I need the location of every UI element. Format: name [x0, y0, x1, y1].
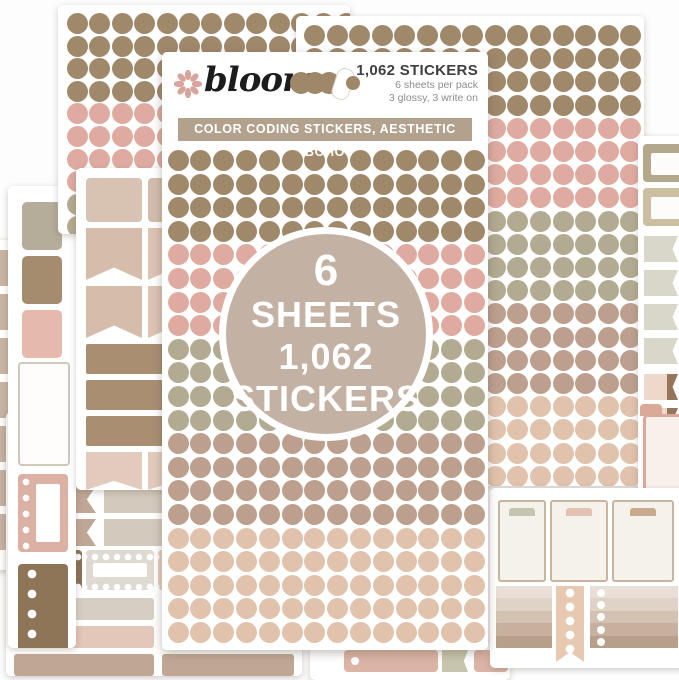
clipboard-sticker	[612, 500, 674, 582]
dot-sticker	[190, 575, 211, 596]
dot-sticker	[304, 197, 325, 218]
dot-sticker	[507, 327, 528, 348]
dot-sticker	[553, 95, 574, 116]
dot-sticker	[349, 25, 370, 46]
dot-sticker	[464, 174, 485, 195]
banner-flag-sticker	[86, 452, 142, 490]
dot-sticker	[190, 315, 211, 336]
dot-sticker	[553, 118, 574, 139]
dot-sticker	[213, 551, 234, 572]
dot-sticker	[168, 197, 189, 218]
dot-sticker	[418, 386, 439, 407]
dot-sticker	[440, 25, 461, 46]
dot-sticker	[190, 598, 211, 619]
dot-sticker	[464, 528, 485, 549]
dot-sticker	[441, 528, 462, 549]
dot-sticker	[598, 303, 619, 324]
dot-sticker	[190, 174, 211, 195]
dot-sticker	[553, 373, 574, 394]
dot-sticker	[373, 150, 394, 171]
dot-sticker	[441, 457, 462, 478]
dot-sticker	[190, 150, 211, 171]
dot-sticker	[464, 457, 485, 478]
dot-sticker	[190, 622, 211, 643]
dot-sticker	[598, 396, 619, 417]
dot-sticker	[168, 598, 189, 619]
dot-sticker	[282, 197, 303, 218]
dot-sticker	[598, 25, 619, 46]
dot-sticker	[168, 386, 189, 407]
dotted-strip-sticker	[18, 564, 68, 648]
dot-sticker	[598, 234, 619, 255]
dot-sticker	[190, 244, 211, 265]
dot-sticker	[553, 327, 574, 348]
dot-sticker	[259, 174, 280, 195]
dot-sticker	[224, 13, 245, 34]
dot-sticker	[441, 221, 462, 242]
dot-sticker	[418, 551, 439, 572]
dot-sticker	[575, 396, 596, 417]
flag-sticker	[442, 650, 468, 672]
dot-sticker	[67, 58, 88, 79]
dotted-label-sticker	[18, 474, 68, 552]
dot-sticker	[190, 457, 211, 478]
dot-sticker	[418, 174, 439, 195]
dot-sticker	[396, 480, 417, 501]
dot-sticker	[575, 350, 596, 371]
dot-sticker	[553, 396, 574, 417]
dot-sticker	[67, 149, 88, 170]
dot-sticker	[530, 443, 551, 464]
dot-sticker	[236, 504, 257, 525]
dot-sticker	[236, 480, 257, 501]
dot-sticker	[350, 504, 371, 525]
dot-sticker	[282, 528, 303, 549]
tab-label-sticker	[643, 188, 679, 226]
dot-sticker	[485, 25, 506, 46]
square-sticker	[22, 202, 62, 250]
dot-sticker	[464, 598, 485, 619]
dot-sticker	[464, 197, 485, 218]
dot-sticker	[373, 433, 394, 454]
dot-sticker	[282, 575, 303, 596]
dot-sticker	[620, 25, 641, 46]
dot-sticker	[507, 25, 528, 46]
dot-sticker	[259, 433, 280, 454]
dot-sticker	[190, 386, 211, 407]
dot-sticker	[373, 480, 394, 501]
dot-sticker	[168, 622, 189, 643]
dot-sticker	[259, 551, 280, 572]
dot-sticker	[350, 598, 371, 619]
dot-sticker	[530, 95, 551, 116]
dot-sticker	[553, 466, 574, 486]
ribbon-bookmark-sticker	[556, 586, 584, 662]
dot-sticker	[89, 81, 110, 102]
dot-sticker	[530, 466, 551, 486]
dot-sticker	[134, 126, 155, 147]
dot-sticker	[530, 48, 551, 69]
dot-sticker	[373, 622, 394, 643]
dot-sticker	[134, 103, 155, 124]
dot-sticker	[350, 528, 371, 549]
dot-sticker	[418, 150, 439, 171]
dot-sticker	[168, 433, 189, 454]
dot-sticker	[441, 174, 462, 195]
dot-sticker	[190, 197, 211, 218]
dot-sticker	[530, 187, 551, 208]
dot-sticker	[464, 410, 485, 431]
dot-sticker	[418, 410, 439, 431]
dot-sticker	[236, 622, 257, 643]
pack-line-2: 3 glossy, 3 write on	[356, 92, 478, 105]
dot-sticker	[464, 339, 485, 360]
dot-sticker	[530, 164, 551, 185]
dot-sticker	[89, 13, 110, 34]
dot-sticker	[507, 443, 528, 464]
dot-sticker	[553, 71, 574, 92]
dot-sticker	[598, 443, 619, 464]
dot-sticker	[553, 25, 574, 46]
dot-sticker	[598, 466, 619, 486]
dot-sticker	[304, 622, 325, 643]
product-banner: COLOR CODING STICKERS, AESTHETIC BOHO	[178, 118, 472, 141]
dot-sticker	[396, 197, 417, 218]
dot-sticker	[259, 575, 280, 596]
dot-sticker	[168, 221, 189, 242]
dot-sticker	[464, 386, 485, 407]
dot-sticker	[168, 528, 189, 549]
dot-sticker	[67, 81, 88, 102]
dot-sticker	[553, 257, 574, 278]
dot-sticker	[190, 480, 211, 501]
dot-sticker	[213, 244, 234, 265]
dot-sticker	[464, 362, 485, 383]
dot-sticker	[396, 622, 417, 643]
dot-sticker	[89, 149, 110, 170]
dot-sticker	[396, 528, 417, 549]
pack-info: 1,062 STICKERS 6 sheets per pack 3 gloss…	[356, 62, 478, 105]
dot-sticker	[213, 575, 234, 596]
checklist-sticker	[590, 586, 678, 648]
dot-sticker	[373, 174, 394, 195]
dot-sticker	[598, 118, 619, 139]
dot-sticker	[598, 71, 619, 92]
dot-sticker	[598, 164, 619, 185]
dot-sticker	[598, 257, 619, 278]
dot-sticker	[441, 480, 462, 501]
dot-sticker	[441, 386, 462, 407]
dot-sticker	[575, 25, 596, 46]
dot-sticker	[441, 362, 462, 383]
dot-sticker	[464, 551, 485, 572]
dot-sticker	[350, 551, 371, 572]
dot-sticker	[464, 268, 485, 289]
dot-sticker	[373, 551, 394, 572]
dot-sticker	[598, 211, 619, 232]
dot-sticker	[396, 575, 417, 596]
dot-sticker	[282, 480, 303, 501]
dot-sticker	[418, 221, 439, 242]
dot-sticker	[327, 528, 348, 549]
dot-sticker	[67, 126, 88, 147]
dot-sticker	[507, 118, 528, 139]
dot-sticker	[282, 622, 303, 643]
dot-sticker	[396, 221, 417, 242]
flag-sticker	[644, 236, 678, 262]
dot-sticker	[441, 197, 462, 218]
dot-sticker	[553, 234, 574, 255]
pack-line-1: 6 sheets per pack	[356, 79, 478, 92]
dot-sticker	[112, 149, 133, 170]
badge-line: SHEETS	[251, 294, 401, 336]
dot-sticker	[441, 244, 462, 265]
dot-sticker	[213, 457, 234, 478]
dot-sticker	[259, 150, 280, 171]
tab-label-sticker	[643, 144, 679, 182]
dot-sticker	[418, 528, 439, 549]
folder-sticker	[643, 414, 679, 496]
dot-sticker	[168, 268, 189, 289]
square-sticker	[22, 310, 62, 358]
dot-sticker	[441, 268, 462, 289]
dot-sticker	[396, 504, 417, 525]
dot-sticker	[507, 373, 528, 394]
flag-sticker	[644, 304, 678, 330]
dot-sticker	[462, 25, 483, 46]
dot-sticker	[168, 410, 189, 431]
dot-sticker	[598, 95, 619, 116]
dot-sticker	[236, 457, 257, 478]
dot-sticker	[168, 480, 189, 501]
dot-sticker	[350, 575, 371, 596]
dot-sticker	[553, 211, 574, 232]
dot-sticker	[530, 373, 551, 394]
dot-sticker	[464, 575, 485, 596]
dot-sticker	[350, 480, 371, 501]
dot-sticker	[168, 457, 189, 478]
dot-sticker	[530, 303, 551, 324]
dot-sticker	[112, 103, 133, 124]
dotted-label-sticker	[86, 550, 154, 590]
dot-sticker	[327, 197, 348, 218]
dot-sticker	[530, 350, 551, 371]
dot-sticker	[201, 13, 222, 34]
dot-sticker	[190, 268, 211, 289]
main-product-sheet: bloom 1,062 STICKERS 6 sheets per pack 3…	[162, 52, 488, 650]
clipboard-sheet	[490, 488, 679, 668]
dot-sticker	[507, 234, 528, 255]
dot-sticker	[507, 187, 528, 208]
dot-sticker	[259, 480, 280, 501]
dot-sticker	[373, 598, 394, 619]
dot-sticker	[236, 551, 257, 572]
dot-sticker	[418, 244, 439, 265]
dot-sticker	[553, 443, 574, 464]
dot-sticker	[530, 118, 551, 139]
dot-sticker	[441, 339, 462, 360]
dot-sticker	[553, 141, 574, 162]
dot-sticker	[620, 118, 641, 139]
dot-sticker	[190, 504, 211, 525]
dot-sticker	[134, 36, 155, 57]
mini-sticker-sheet	[8, 186, 76, 648]
dot-sticker	[464, 292, 485, 313]
dot-sticker	[598, 373, 619, 394]
label-sticker	[344, 650, 438, 672]
dot-sticker	[620, 71, 641, 92]
dot-sticker	[418, 504, 439, 525]
dot-sticker	[530, 234, 551, 255]
dot-sticker	[396, 433, 417, 454]
dot-sticker	[575, 257, 596, 278]
brand-header: bloom 1,062 STICKERS 6 sheets per pack 3…	[162, 52, 488, 116]
dot-sticker	[259, 197, 280, 218]
dot-sticker	[213, 197, 234, 218]
dot-sticker	[464, 150, 485, 171]
sticker-roll-graphic	[290, 70, 360, 96]
dot-sticker	[553, 303, 574, 324]
label-flag-sheet	[638, 136, 679, 496]
dot-sticker	[441, 315, 462, 336]
dot-sticker	[236, 598, 257, 619]
dot-sticker	[259, 598, 280, 619]
dot-sticker	[373, 528, 394, 549]
dot-sticker	[575, 303, 596, 324]
dot-sticker	[168, 362, 189, 383]
dot-sticker	[112, 36, 133, 57]
dot-sticker	[530, 419, 551, 440]
dot-sticker	[327, 457, 348, 478]
dot-sticker	[190, 292, 211, 313]
dot-sticker	[441, 410, 462, 431]
dot-sticker	[575, 327, 596, 348]
dot-sticker	[213, 528, 234, 549]
dot-sticker	[598, 419, 619, 440]
dot-sticker	[507, 396, 528, 417]
dot-sticker	[598, 187, 619, 208]
dot-sticker	[236, 575, 257, 596]
dot-sticker	[304, 528, 325, 549]
dot-sticker	[259, 528, 280, 549]
dot-sticker	[259, 504, 280, 525]
dot-sticker	[373, 457, 394, 478]
dot-sticker	[236, 174, 257, 195]
dot-sticker	[507, 95, 528, 116]
dot-sticker	[282, 150, 303, 171]
dot-sticker	[575, 164, 596, 185]
sticker-count-label: 1,062 STICKERS	[356, 62, 478, 79]
dot-sticker	[282, 174, 303, 195]
label-sticker	[162, 654, 294, 676]
dot-sticker	[441, 622, 462, 643]
badge-line: STICKERS	[231, 378, 421, 420]
dot-sticker	[190, 362, 211, 383]
dot-sticker	[67, 13, 88, 34]
dot-sticker	[213, 598, 234, 619]
dot-sticker	[190, 551, 211, 572]
dot-sticker	[464, 221, 485, 242]
dot-sticker	[327, 575, 348, 596]
dot-sticker	[553, 48, 574, 69]
dot-sticker	[236, 433, 257, 454]
dot-sticker	[67, 36, 88, 57]
dot-sticker	[282, 551, 303, 572]
dot-sticker	[236, 150, 257, 171]
dot-sticker	[259, 457, 280, 478]
dot-sticker	[89, 58, 110, 79]
dot-sticker	[441, 504, 462, 525]
dot-sticker	[441, 150, 462, 171]
dot-sticker	[67, 103, 88, 124]
dot-sticker	[418, 433, 439, 454]
dot-sticker	[134, 58, 155, 79]
dot-sticker	[179, 13, 200, 34]
dot-sticker	[89, 36, 110, 57]
dot-sticker	[507, 466, 528, 486]
dot-sticker	[464, 504, 485, 525]
dot-sticker	[112, 58, 133, 79]
dot-sticker	[134, 149, 155, 170]
brand-logo-text: bloom	[204, 60, 294, 100]
banner-flag-sticker	[86, 228, 142, 280]
dot-sticker	[575, 187, 596, 208]
dot-sticker	[282, 457, 303, 478]
dot-sticker	[282, 598, 303, 619]
dot-sticker	[213, 150, 234, 171]
count-badge: 6 SHEETS 1,062 STICKERS	[219, 227, 433, 441]
dot-sticker	[168, 575, 189, 596]
dot-sticker	[530, 396, 551, 417]
dot-sticker	[304, 174, 325, 195]
checklist-sticker	[496, 586, 552, 648]
dot-sticker	[575, 95, 596, 116]
dot-sticker	[530, 327, 551, 348]
dot-sticker	[507, 257, 528, 278]
flag-sticker	[644, 270, 678, 296]
dot-sticker	[350, 150, 371, 171]
dot-sticker	[441, 551, 462, 572]
dot-sticker	[396, 174, 417, 195]
dot-sticker	[396, 551, 417, 572]
dot-sticker	[598, 350, 619, 371]
dot-sticker	[620, 95, 641, 116]
dot-sticker	[168, 244, 189, 265]
dot-sticker	[507, 164, 528, 185]
dot-sticker	[530, 141, 551, 162]
dot-sticker	[575, 118, 596, 139]
dot-sticker	[575, 141, 596, 162]
dot-sticker	[269, 13, 290, 34]
dot-sticker	[507, 141, 528, 162]
dot-sticker	[441, 292, 462, 313]
dot-sticker	[530, 71, 551, 92]
dot-sticker	[213, 221, 234, 242]
dot-sticker	[553, 164, 574, 185]
dot-sticker	[553, 350, 574, 371]
dot-sticker	[236, 197, 257, 218]
dot-sticker	[464, 480, 485, 501]
dot-sticker	[575, 466, 596, 486]
label-sticker	[86, 178, 142, 222]
dot-sticker	[304, 575, 325, 596]
dot-sticker	[530, 25, 551, 46]
product-photo: bloom 1,062 STICKERS 6 sheets per pack 3…	[0, 0, 679, 680]
dot-sticker	[282, 504, 303, 525]
dot-sticker	[441, 575, 462, 596]
badge-line: 1,062	[278, 336, 373, 378]
dot-sticker	[373, 575, 394, 596]
